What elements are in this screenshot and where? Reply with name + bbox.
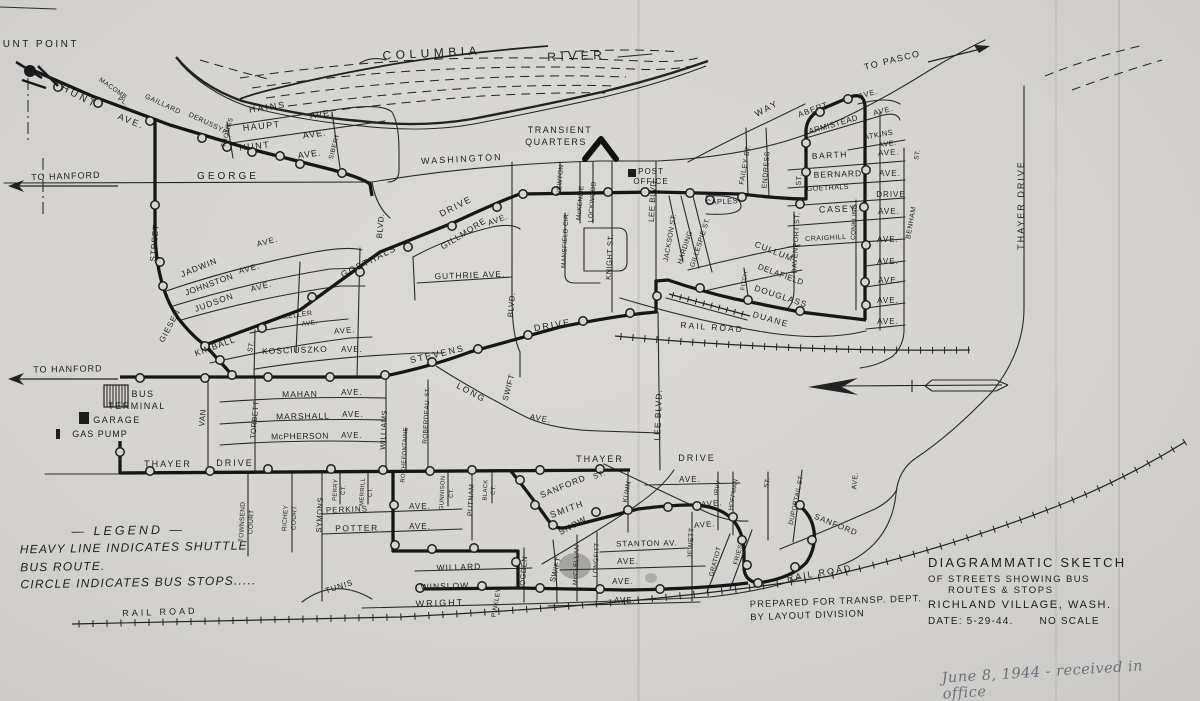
street-label: ATKINS xyxy=(863,128,894,142)
street-label: WRIGHT xyxy=(415,597,464,609)
street-label: BLVD. xyxy=(375,213,386,239)
railroad-tick xyxy=(610,599,611,606)
river-wave xyxy=(288,85,616,106)
street-label: SNOW xyxy=(557,514,589,537)
street-label: ST. xyxy=(425,387,431,397)
map-subtitle-2: ROUTES & STOPS xyxy=(948,585,1138,596)
street-label: AVE. xyxy=(679,475,701,484)
street-label: AVE. xyxy=(238,261,261,275)
compass-arrow-point xyxy=(808,378,858,395)
bus-stop-marker xyxy=(624,506,632,514)
map-date: DATE: 5-29-44. xyxy=(928,616,1014,628)
street-label: LONGFITT xyxy=(592,542,601,577)
river-wave xyxy=(312,93,606,113)
street-label: TORBETT xyxy=(248,400,260,439)
street-label: GUNNISON xyxy=(439,475,447,510)
street-label: AVE. xyxy=(879,169,901,178)
street-label: RAIL ROAD xyxy=(680,320,744,334)
street-line xyxy=(618,54,652,57)
bus-stop-marker xyxy=(428,545,436,553)
street-label: AVE. xyxy=(341,345,363,354)
railroad-tick xyxy=(1183,439,1187,445)
railroad-tick xyxy=(596,600,597,607)
bus-stop-marker xyxy=(754,579,762,587)
street-label: AVE. xyxy=(302,127,327,140)
street-label: AVE. xyxy=(614,596,636,605)
railroad-tick xyxy=(749,584,750,591)
street-label: AVE. xyxy=(341,431,363,440)
street-label: OGDEN xyxy=(518,555,530,586)
street-label: SANFORD xyxy=(813,512,859,538)
bus-stop-marker xyxy=(493,203,501,211)
street-label: DRIVE xyxy=(216,458,254,468)
bus-stop-marker xyxy=(796,200,804,208)
street-label: THAYER DRIVE xyxy=(1016,160,1026,250)
bus-stop-marker xyxy=(296,160,304,168)
street-label: DUANE xyxy=(752,309,791,329)
street-label: MERRILL xyxy=(359,477,366,506)
street-line xyxy=(4,182,372,183)
street-label: BERNARD xyxy=(813,168,862,180)
bus-stop-marker xyxy=(696,284,704,292)
bus-stop-marker xyxy=(338,169,346,177)
bus-stop-marker xyxy=(862,166,870,174)
street-line xyxy=(220,441,386,445)
shuttle-bus-route-line xyxy=(120,441,630,473)
street-label: FAILEY ST. xyxy=(739,144,753,185)
bus-stop-marker xyxy=(146,117,154,125)
bus-stop-marker xyxy=(531,501,539,509)
street-label: WILLIAMS xyxy=(378,410,389,450)
bus-stop-marker xyxy=(604,188,612,196)
street-label: AVE. xyxy=(341,388,363,397)
street-label: McPHERSON xyxy=(271,430,329,441)
street-label: MARSHALL xyxy=(276,411,330,422)
bus-stop-marker xyxy=(198,134,206,142)
street-label: TUNIS xyxy=(324,578,354,596)
street-label: HAINS xyxy=(248,99,287,114)
bus-stop-marker xyxy=(404,243,412,251)
bus-stop-marker xyxy=(592,508,600,516)
street-label: JACKSON ST. xyxy=(663,213,678,262)
street-label: JEWETT xyxy=(687,527,696,559)
street-label: AVE. xyxy=(877,317,899,326)
street-label: LONG xyxy=(455,380,488,404)
street-label: CAPLES xyxy=(705,196,738,207)
street-label: McCLELLAN xyxy=(572,545,581,586)
railroad-tick xyxy=(1159,453,1162,459)
street-line xyxy=(600,548,688,552)
bus-stop-marker xyxy=(264,373,272,381)
map-title: DIAGRAMMATIC SKETCH xyxy=(928,555,1138,571)
street-line xyxy=(0,7,56,9)
street-label: MAHAN xyxy=(282,389,318,400)
street-label: CONKLING xyxy=(850,204,859,241)
bus-stop-marker xyxy=(448,222,456,230)
street-label: RAIL ROAD xyxy=(122,606,197,619)
bus-stop-marker xyxy=(729,513,737,521)
street-label: HUNT POINT xyxy=(0,39,79,50)
transient-quarters-chevron-icon xyxy=(585,139,616,159)
street-label: WINSLOW xyxy=(420,580,469,592)
railroad-tick xyxy=(721,588,722,595)
bus-stop-marker xyxy=(656,585,664,593)
street-label: STANTON AV. xyxy=(616,538,678,548)
bus-stop-marker xyxy=(536,584,544,592)
bus-stop-marker xyxy=(519,190,527,198)
street-label: THAYER xyxy=(576,454,624,464)
street-label: BLVD. xyxy=(506,292,517,318)
bus-stop-marker xyxy=(136,374,144,382)
post-office-icon xyxy=(628,169,636,177)
street-label: LEE BLVD. xyxy=(652,389,664,441)
street-label: VAN xyxy=(197,409,207,427)
bus-stop-marker xyxy=(216,356,224,364)
street-label: GRATIOT xyxy=(708,546,723,577)
railroad-tick xyxy=(621,333,622,340)
bus-stop-marker xyxy=(116,448,124,456)
map-subtitle-1: OF STREETS SHOWING BUS xyxy=(928,574,1138,585)
street-label: KNIGHT ST. xyxy=(604,234,615,281)
street-label: PINKLEY xyxy=(491,587,503,618)
street-label: AVE. xyxy=(256,234,279,248)
street-label: McKENZIE xyxy=(576,185,586,220)
bus-stop-marker xyxy=(151,201,159,209)
bus-stop-marker xyxy=(808,536,816,544)
bus-stop-marker xyxy=(862,301,870,309)
street-line xyxy=(666,298,747,320)
direction-arrow-line xyxy=(928,48,985,62)
bus-stop-marker xyxy=(390,501,398,509)
railroad-tick xyxy=(568,603,569,610)
street-label: LOCKWOOD xyxy=(587,181,598,223)
bus-stop-marker xyxy=(579,317,587,325)
street-label: SANFORD xyxy=(538,472,587,499)
gas-pump-icon xyxy=(56,429,60,439)
street-label: CT. xyxy=(491,485,498,495)
street-label: CT. xyxy=(449,488,456,498)
street-label: SYMONS xyxy=(314,497,325,533)
street-label: AVE. xyxy=(877,235,899,244)
street-label: CT. xyxy=(341,485,348,495)
street-label: TO HANFORD xyxy=(33,363,103,374)
street-label: AVE. xyxy=(297,147,322,160)
bus-stop-marker xyxy=(738,193,746,201)
street-label: AVE. xyxy=(612,577,634,586)
street-label: GOETHALS xyxy=(807,184,849,193)
garage-icon xyxy=(79,412,89,424)
bus-stop-marker xyxy=(844,95,852,103)
street-label: NEWTON xyxy=(556,164,566,195)
railroad-tick xyxy=(554,604,555,611)
bus-stop-marker xyxy=(791,563,799,571)
river-wave xyxy=(240,57,702,78)
street-label: GILLMORE xyxy=(439,215,488,251)
river-wave xyxy=(200,60,272,80)
street-label: AVE. xyxy=(694,519,716,530)
street-label: AVE. xyxy=(529,412,552,425)
bus-stop-marker xyxy=(426,467,434,475)
bus-stop-marker xyxy=(264,465,272,473)
bus-stop-marker xyxy=(381,371,389,379)
street-label: AVE. xyxy=(878,276,900,285)
bus-stop-marker xyxy=(478,582,486,590)
railroad-tick xyxy=(638,597,639,604)
street-label: BENHAM xyxy=(905,206,918,240)
bus-stop-marker xyxy=(743,561,751,569)
bus-stop-marker xyxy=(258,324,266,332)
legend: — LEGEND — HEAVY LINE INDICATES SHUTTLE … xyxy=(19,519,295,594)
street-label: SIBERT xyxy=(328,133,342,160)
street-line xyxy=(296,262,300,352)
street-label: PERRY xyxy=(332,479,339,501)
street-label: AVE. xyxy=(878,207,900,216)
bus-stop-marker xyxy=(308,293,316,301)
street-label: AVE. xyxy=(409,522,431,531)
compass-arrow-shaft xyxy=(842,385,1002,386)
bus-stop-marker xyxy=(474,345,482,353)
street-label: CRAIGHILL xyxy=(805,234,847,243)
bus-stop-marker xyxy=(653,292,661,300)
bus-stop-marker xyxy=(744,296,752,304)
bus-stop-marker xyxy=(327,465,335,473)
bus-stop-marker xyxy=(468,466,476,474)
railroad-tick xyxy=(582,602,583,609)
bus-stop-marker xyxy=(159,282,167,290)
street-label: POTTER xyxy=(335,523,379,534)
street-label: AVE. xyxy=(409,502,431,511)
street-label: RIVER xyxy=(547,48,607,64)
street-line xyxy=(413,257,415,300)
street-label: GUTHRIE AVE. xyxy=(434,269,505,281)
street-line xyxy=(788,217,905,226)
railroad-tick xyxy=(666,594,667,601)
street-label: DRIVE xyxy=(678,453,716,463)
street-label: SWIFT xyxy=(501,373,517,402)
bus-stop-marker xyxy=(201,374,209,382)
street-label: AVE. xyxy=(701,498,723,509)
bus-stop-marker xyxy=(802,139,810,147)
street-label: IRVY xyxy=(714,480,723,496)
railroad-tick xyxy=(1171,446,1175,452)
direction-arrow-head xyxy=(974,45,990,53)
street-label: AVE. xyxy=(878,147,900,157)
river-wave xyxy=(1072,60,1162,90)
street-label: AVE. xyxy=(617,557,639,566)
railroad-tick xyxy=(777,580,778,587)
street-label: AVE. xyxy=(334,325,356,336)
paper-stain xyxy=(645,573,657,583)
bus-stop-marker xyxy=(862,241,870,249)
street-label: ROCHEFONTAINE xyxy=(401,427,410,483)
map-scale: NO SCALE xyxy=(1040,616,1100,628)
street-label: ST. xyxy=(763,477,772,488)
street-label: TO PASCO xyxy=(863,48,921,72)
scanned-map-page: HUNT POINTHUNTAVE.MACOMBPL.GAILLARDDERUS… xyxy=(0,0,1200,701)
street-label: WILLARD xyxy=(436,561,481,573)
railroad-tick xyxy=(633,334,634,341)
railroad-tick xyxy=(735,586,736,593)
river-wave xyxy=(1045,46,1140,76)
bus-stop-marker xyxy=(686,189,694,197)
street-label: AVE. xyxy=(342,410,364,419)
railroad-tick xyxy=(669,337,670,344)
street-label: MANSFIELD CIR. xyxy=(561,212,571,269)
bus-stop-marker xyxy=(206,467,214,475)
bus-stop-marker xyxy=(524,331,532,339)
railroad-tick xyxy=(657,336,658,343)
dashdot-layer xyxy=(28,78,43,218)
bus-stop-marker xyxy=(626,309,634,317)
street-label: CT. xyxy=(368,487,375,497)
street-label: QUARTERS xyxy=(525,137,587,147)
street-label: AVE. xyxy=(301,319,318,328)
street-label: PUTNAM xyxy=(467,483,476,516)
bus-stop-marker xyxy=(536,466,544,474)
street-label: AVE. xyxy=(857,87,879,101)
street-label: AVE. xyxy=(877,296,899,305)
street-label: TERMINAL xyxy=(108,401,166,411)
bus-stop-marker xyxy=(391,541,399,549)
title-block: DIAGRAMMATIC SKETCH OF STREETS SHOWING B… xyxy=(928,555,1138,628)
street-label: AVE. xyxy=(250,279,273,293)
street-label: HUNT xyxy=(239,139,271,152)
bus-stop-marker xyxy=(860,203,868,211)
bus-stop-marker xyxy=(596,585,604,593)
street-label: PERKINS xyxy=(326,504,368,514)
bus-stop-marker xyxy=(516,476,524,484)
street-label: POST xyxy=(638,167,664,176)
bus-stop-marker xyxy=(326,373,334,381)
street-label: WASHINGTON xyxy=(421,152,503,166)
street-label: GIESEN xyxy=(157,308,182,344)
street-label: TO HANFORD xyxy=(31,170,101,182)
bus-stop-marker xyxy=(228,371,236,379)
railroad-tick xyxy=(645,335,646,342)
bus-stop-marker xyxy=(738,536,746,544)
street-label: AVE. xyxy=(851,472,859,490)
street-label: DRIVE xyxy=(876,190,905,199)
street-label: THAYER xyxy=(144,459,192,469)
railroad-tick xyxy=(694,591,695,598)
bus-stop-marker xyxy=(664,503,672,511)
street-label: GARAGE xyxy=(93,415,141,425)
street-label: GAS PUMP xyxy=(72,429,128,439)
street-label: GEORGE xyxy=(197,171,259,182)
street-label: ROBERDEAU xyxy=(422,400,431,444)
street-label: GAILLARD xyxy=(144,93,182,116)
bus-stop-marker xyxy=(861,278,869,286)
railroad-line xyxy=(669,294,750,316)
bus-stop-marker xyxy=(470,544,478,552)
compass-arrow-feather xyxy=(996,385,1008,391)
bus-stop-marker xyxy=(379,466,387,474)
street-label: BARTH xyxy=(812,149,849,161)
street-label: STREET xyxy=(148,224,160,262)
street-label: TRANSIENT xyxy=(528,125,593,135)
street-label: BUS xyxy=(131,389,154,399)
street-label: JADWIN xyxy=(179,255,219,279)
street-label: DAVENPORT ST. xyxy=(791,212,801,274)
street-label: HAUPT xyxy=(242,119,281,133)
street-label: ENDRESS xyxy=(761,151,771,189)
street-label: KOSCIUSZKO xyxy=(262,344,328,356)
hunt-point-scribble xyxy=(22,80,46,88)
street-label: COLUMBIA xyxy=(382,43,481,62)
street-label: CULLUM xyxy=(753,239,795,264)
street-label: WAY xyxy=(753,98,780,119)
river-bank xyxy=(180,63,706,129)
street-label: ST. xyxy=(913,149,922,160)
street-line xyxy=(565,213,600,283)
street-label: KUHN xyxy=(622,480,633,503)
railroad-tick xyxy=(540,605,541,612)
map-location: RICHLAND VILLAGE, WASH. xyxy=(928,599,1138,612)
bus-stop-marker xyxy=(276,152,284,160)
street-label: AVE. xyxy=(877,257,899,266)
paper-fold-crease xyxy=(637,0,640,701)
street-label: ST. xyxy=(796,174,804,186)
railroad-tick xyxy=(652,595,653,602)
street-line xyxy=(372,182,390,218)
street-label: BLACK xyxy=(482,479,489,500)
